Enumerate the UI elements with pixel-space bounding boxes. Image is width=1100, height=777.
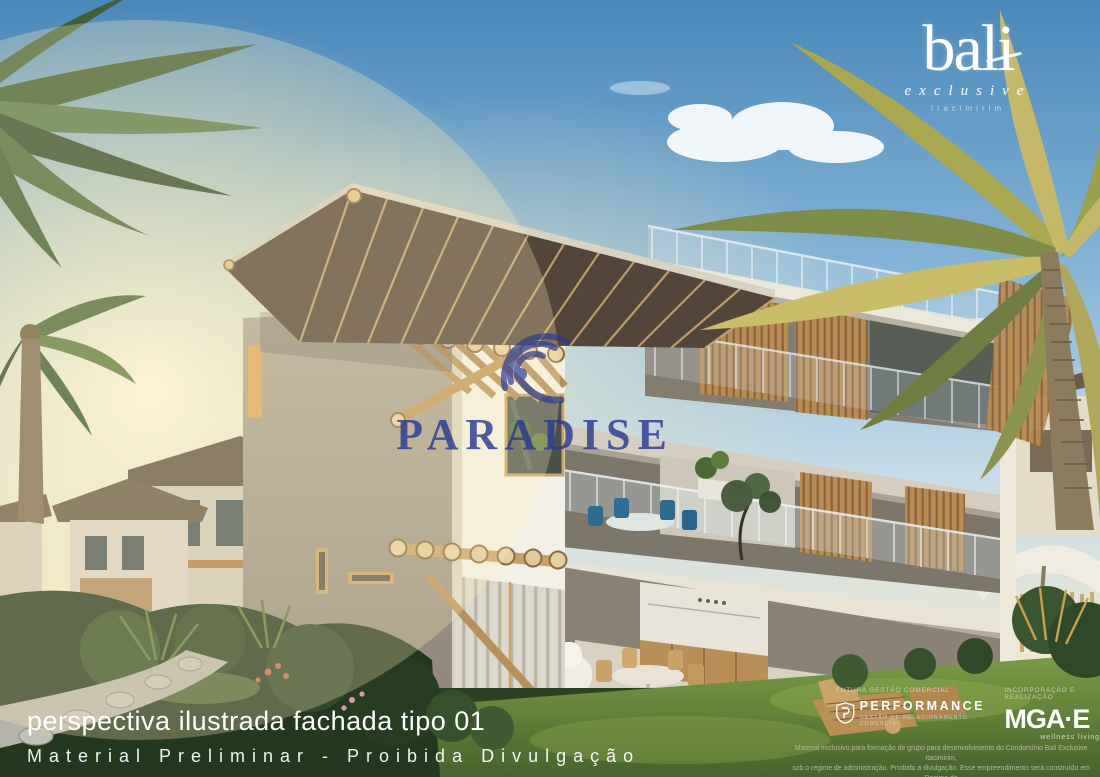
- image-caption: perspectiva ilustrada fachada tipo 01 Ma…: [27, 706, 640, 767]
- mga-brand: MGA·E: [1004, 706, 1100, 732]
- bali-logo-tagline: Itacimirim: [868, 104, 1068, 113]
- mga-caption: INCORPORAÇÃO E REALIZAÇÃO: [1004, 687, 1100, 701]
- disclaimer-line2: sob o regime de administração. Proibido …: [783, 764, 1099, 777]
- caption-line2: Material Preliminar - Proibida Divulgaçã…: [27, 746, 640, 767]
- bali-logo-subtitle: exclusive: [868, 83, 1068, 100]
- disclaimer-line1: Material exclusivo para formação de grup…: [783, 744, 1099, 764]
- performance-caption: FUTURA GESTÃO COMERCIAL: [836, 687, 988, 694]
- mga-subtitle: wellness living: [1004, 734, 1100, 741]
- legal-disclaimer: Material exclusivo para formação de grup…: [783, 744, 1099, 777]
- render-canvas: bali exclusive Itacimirim PARADISE persp…: [0, 0, 1100, 777]
- caption-line1: perspectiva ilustrada fachada tipo 01: [27, 706, 640, 737]
- paradise-waves-icon: [487, 312, 583, 404]
- performance-credit: FUTURA GESTÃO COMERCIAL PERFORMANCE GEST…: [836, 687, 988, 741]
- credits-block: FUTURA GESTÃO COMERCIAL PERFORMANCE GEST…: [836, 687, 1100, 741]
- paradise-watermark-text: PARADISE: [375, 409, 695, 460]
- mga-credit: INCORPORAÇÃO E REALIZAÇÃO MGA·E wellness…: [1004, 687, 1100, 741]
- paradise-watermark: PARADISE: [375, 312, 695, 460]
- bali-logo-title: bali: [868, 18, 1068, 81]
- performance-brand: PERFORMANCE: [860, 699, 989, 713]
- bali-exclusive-logo: bali exclusive Itacimirim: [868, 18, 1068, 113]
- performance-subtitle: GESTÃO DE RELACIONAMENTO COMERCIAL: [860, 715, 989, 727]
- performance-shield-icon: [836, 700, 855, 726]
